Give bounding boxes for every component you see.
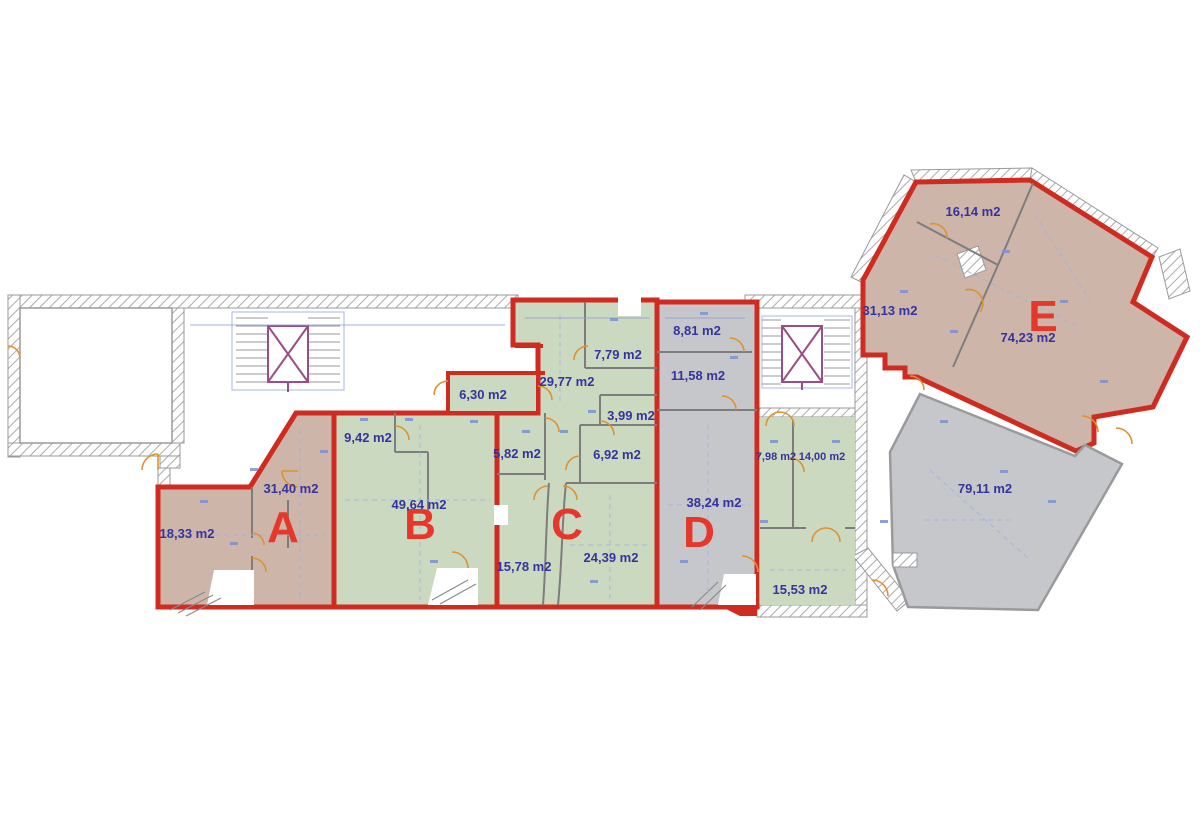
wall-top-mid [745, 295, 867, 308]
box-bc-wall [494, 505, 508, 525]
area-label-d-1158: 11,58 m2 [671, 368, 725, 383]
vestibule-a [207, 570, 254, 605]
door-630-left [434, 381, 448, 395]
area-label-b-main: 49,64 m2 [392, 497, 447, 512]
unit-d-polygon [657, 302, 757, 607]
area-label-c-630: 6,30 m2 [459, 387, 507, 402]
area-label-c-2977: 29,77 m2 [540, 374, 595, 389]
area-label-a-room: 18,33 m2 [160, 526, 215, 541]
white-room-topleft [20, 308, 172, 443]
area-label-c-1578: 15,78 m2 [497, 559, 552, 574]
wall-top-left [8, 295, 518, 308]
porch-d [722, 607, 757, 616]
red-segments [448, 346, 545, 373]
area-label-c-2439: 24,39 m2 [584, 550, 639, 565]
area-label-g1: 7,98 m2 [756, 451, 796, 463]
floor-plan-canvas: A B C D E 31,40 m2 18,33 m2 9,42 m2 49,6… [0, 0, 1200, 815]
area-label-b-room: 9,42 m2 [344, 430, 392, 445]
units [158, 180, 1187, 610]
wall-grooms-bottom [757, 605, 867, 617]
notch-79 [893, 553, 917, 567]
area-label-g2: 14,00 m2 [799, 451, 845, 463]
vestibule-d [718, 574, 756, 605]
staircase-2 [762, 316, 852, 390]
area-label-e-main: 74,23 m2 [1001, 330, 1056, 345]
area-label-g3: 15,53 m2 [773, 582, 828, 597]
area-label-e-1614: 16,14 m2 [946, 204, 1001, 219]
pillar-hatched [1159, 249, 1190, 299]
unit-letter-c: C [551, 500, 583, 549]
staircase-1-outline [232, 312, 344, 390]
staircase-1-treads-left [236, 318, 268, 382]
staircase-1-treads-right [308, 318, 340, 382]
floor-plan-svg: A B C D E 31,40 m2 18,33 m2 9,42 m2 49,6… [0, 0, 1200, 815]
staircase-2-treads-left [762, 320, 781, 384]
area-label-e-3113: 31,13 m2 [863, 303, 918, 318]
staircase-1 [232, 312, 344, 392]
elevator-2-x [782, 326, 822, 390]
common-rooms [20, 308, 172, 443]
staircase-2-treads-right [824, 320, 850, 384]
wall-divider [172, 308, 184, 443]
area-label-c-692: 6,92 m2 [593, 447, 641, 462]
area-label-c-399: 3,99 m2 [607, 408, 655, 423]
wall-step [160, 456, 180, 468]
area-label-d-881: 8,81 m2 [673, 323, 721, 338]
wall-left [8, 295, 20, 457]
other-rooms-green [760, 417, 855, 605]
unit-letter-d: D [683, 508, 715, 557]
shaft-c-top [618, 295, 641, 316]
area-label-c-582: 5,82 m2 [493, 446, 541, 461]
unit-letter-a: A [267, 503, 299, 552]
area-label-a-main: 31,40 m2 [264, 481, 319, 496]
area-label-d-main: 38,24 m2 [687, 495, 742, 510]
area-label-79: 79,11 m2 [958, 481, 1012, 496]
area-label-c-779: 7,79 m2 [594, 347, 642, 362]
door-e-bottom-2 [1116, 428, 1132, 444]
